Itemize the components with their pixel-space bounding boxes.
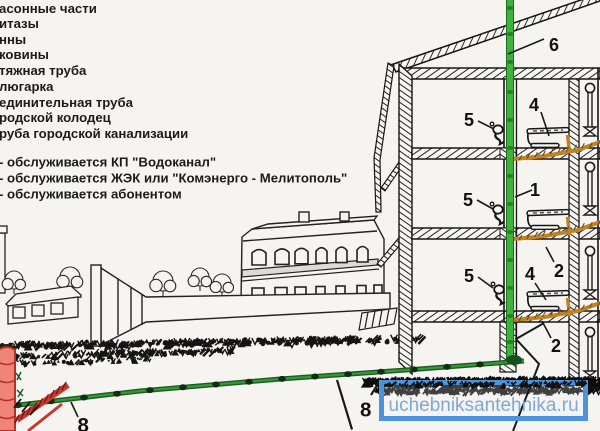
- svg-text:нны: нны: [0, 32, 26, 47]
- svg-text:6: 6: [549, 35, 559, 55]
- svg-text:родской колодец: родской колодец: [0, 110, 111, 125]
- svg-text:- обслуживается КП "Водоканал": - обслуживается КП "Водоканал": [0, 155, 216, 170]
- svg-text:4: 4: [529, 95, 539, 115]
- svg-text:2: 2: [554, 261, 564, 281]
- svg-text:- обслуживается абонентом: - обслуживается абонентом: [0, 187, 182, 202]
- svg-text:тяжная труба: тяжная труба: [0, 63, 87, 78]
- svg-text:5: 5: [463, 190, 473, 210]
- svg-text:люгарка: люгарка: [0, 79, 54, 94]
- svg-text:- обслуживается ЖЭК или "Комэн: - обслуживается ЖЭК или "Комэнерго - Мел…: [0, 171, 347, 186]
- svg-text:единительная труба: единительная труба: [0, 95, 134, 110]
- svg-text:8: 8: [360, 399, 371, 422]
- svg-text:итазы: итазы: [0, 16, 39, 31]
- svg-text:uchebniksantehnika.ru: uchebniksantehnika.ru: [389, 395, 579, 416]
- svg-text:ковины: ковины: [0, 47, 49, 62]
- svg-text:2: 2: [551, 336, 561, 356]
- svg-text:5: 5: [464, 266, 474, 286]
- svg-text:асонные части: асонные части: [0, 1, 97, 16]
- svg-text:4: 4: [525, 264, 535, 284]
- svg-text:8: 8: [78, 414, 89, 431]
- svg-text:руба городской канализации: руба городской канализации: [0, 126, 188, 141]
- svg-text:5: 5: [464, 110, 474, 130]
